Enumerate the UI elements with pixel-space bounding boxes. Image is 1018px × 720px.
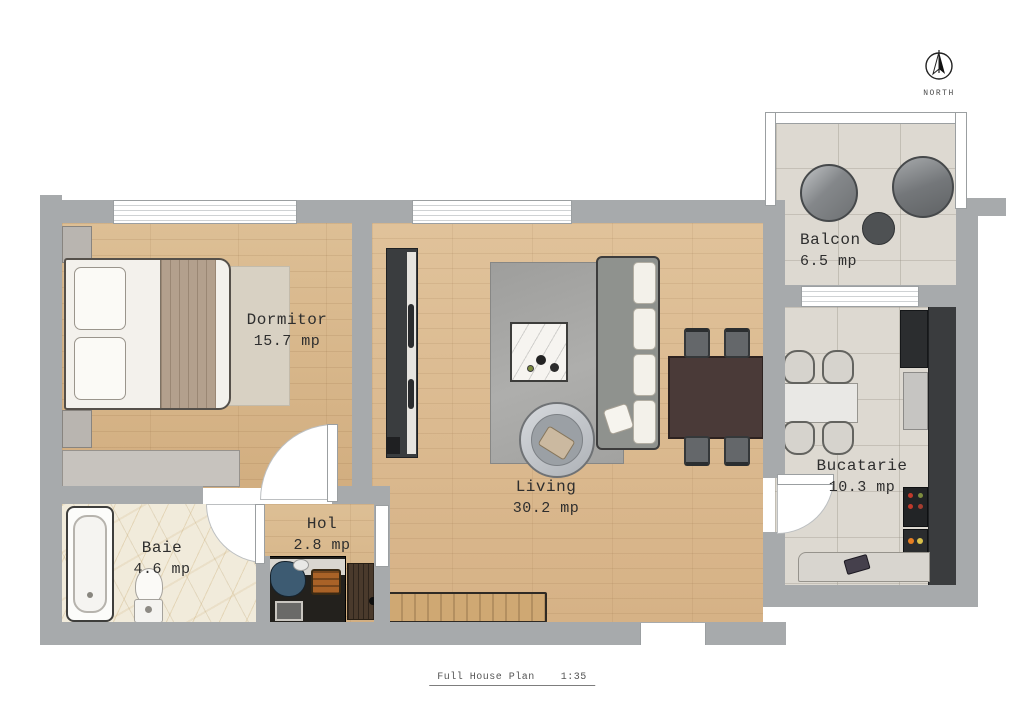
sofa-cushion	[633, 308, 656, 350]
wall-left	[40, 195, 62, 645]
room-label-bucatarie: Bucatarie 10.3 mp	[817, 456, 908, 498]
table-decor	[536, 355, 546, 365]
north-arrow-icon	[915, 46, 963, 86]
sofa-pillow	[603, 403, 635, 435]
bedroom-door	[327, 424, 338, 502]
cooktop-knob	[918, 504, 923, 509]
bedroom-window	[113, 200, 297, 224]
cooktop-knob	[918, 493, 923, 498]
bathtub	[66, 506, 114, 622]
room-name: Dormitor	[247, 310, 328, 331]
table-plant	[527, 365, 534, 372]
coffee-table	[510, 322, 568, 382]
room-area: 15.7 mp	[247, 331, 328, 352]
dining-chair	[684, 328, 710, 358]
cooktop-knob	[908, 493, 913, 498]
swivel-chair	[519, 402, 595, 478]
room-label-baie: Baie 4.6 mp	[133, 538, 190, 580]
toilet-flush	[145, 606, 152, 613]
north-compass: NORTH	[915, 46, 963, 98]
tv-decor	[408, 379, 414, 409]
hallway-wardrobe	[266, 556, 346, 624]
room-name: Bucatarie	[817, 456, 908, 477]
plan-scale: 1:35	[561, 672, 587, 683]
kitchen-appliance-top	[900, 310, 928, 368]
bedroom-dresser	[62, 450, 240, 487]
room-area: 30.2 mp	[513, 498, 580, 519]
room-name: Hol	[293, 514, 350, 535]
tv-unit	[386, 248, 418, 458]
balcony-wall-top	[765, 112, 967, 124]
balcony-table	[862, 212, 895, 245]
bathroom-door	[255, 504, 265, 564]
tv-shelf	[407, 252, 416, 454]
living-terrace-opening	[640, 623, 706, 645]
plan-title: Full House Plan	[437, 672, 535, 683]
room-label-hol: Hol 2.8 mp	[293, 514, 350, 556]
picture-frame	[275, 601, 303, 621]
bathtub-basin	[73, 515, 107, 613]
sideboard	[386, 592, 547, 623]
room-name: Baie	[133, 538, 190, 559]
balcony-chair	[800, 164, 858, 222]
room-area: 4.6 mp	[133, 559, 190, 580]
oven-light	[908, 538, 914, 544]
bed-pillow	[74, 267, 126, 330]
wall-bedroom-bath-left	[40, 486, 203, 504]
kitchen-counter-tall	[928, 307, 956, 585]
storage-box	[386, 437, 400, 454]
dining-chair	[724, 436, 750, 466]
wall-living-kitchen-upper	[763, 200, 785, 478]
kitchen-chair	[783, 350, 815, 384]
wall-bath-hallway	[256, 556, 270, 630]
hallway-door	[375, 505, 389, 567]
wall-bedroom-living	[352, 223, 372, 488]
wall-bottom-right	[763, 585, 978, 607]
sofa	[596, 256, 660, 450]
nightstand	[62, 410, 92, 448]
wall-bedroom-bath-right	[332, 486, 390, 504]
room-name: Balcon	[800, 230, 861, 251]
sofa-cushion	[633, 262, 656, 304]
room-area: 10.3 mp	[817, 477, 908, 498]
bed-pillow	[74, 337, 126, 400]
cooktop-knob	[908, 504, 913, 509]
double-bed	[64, 258, 231, 410]
dining-table	[668, 356, 764, 439]
balcony-chair	[892, 156, 954, 218]
room-area: 2.8 mp	[293, 535, 350, 556]
room-name: Living	[513, 477, 580, 498]
balcony-wall-right	[955, 112, 967, 209]
table-decor	[550, 363, 559, 372]
kitchen-chair	[822, 421, 854, 455]
living-window	[412, 200, 572, 224]
room-label-balcon: Balcon 6.5 mp	[800, 230, 861, 272]
kitchen-chair	[822, 350, 854, 384]
room-label-dormitor: Dormitor 15.7 mp	[247, 310, 328, 352]
dining-chair	[724, 328, 750, 358]
fridge	[903, 372, 928, 430]
sofa-cushion	[633, 354, 656, 396]
bathtub-drain	[87, 592, 93, 598]
bed-blanket	[160, 260, 216, 408]
north-label: NORTH	[915, 89, 963, 98]
suitcase	[311, 569, 341, 595]
room-area: 6.5 mp	[800, 251, 861, 272]
balcony-sliding-door	[801, 286, 919, 307]
dining-chair	[684, 436, 710, 466]
kitchen-chair	[783, 421, 815, 455]
room-label-living: Living 30.2 mp	[513, 477, 580, 519]
wall-right	[956, 200, 978, 607]
sofa-cushion	[633, 400, 656, 444]
storage-bag-small	[293, 559, 309, 571]
balcony-wall-left	[765, 112, 776, 206]
tv-decor	[408, 304, 414, 348]
floor-plan-page: Dormitor 15.7 mp Living 30.2 mp Balcon 6…	[0, 0, 1018, 720]
title-block: Full House Plan 1:35	[429, 672, 595, 686]
oven-light	[917, 538, 923, 544]
wall-living-kitchen-lower	[763, 532, 785, 607]
